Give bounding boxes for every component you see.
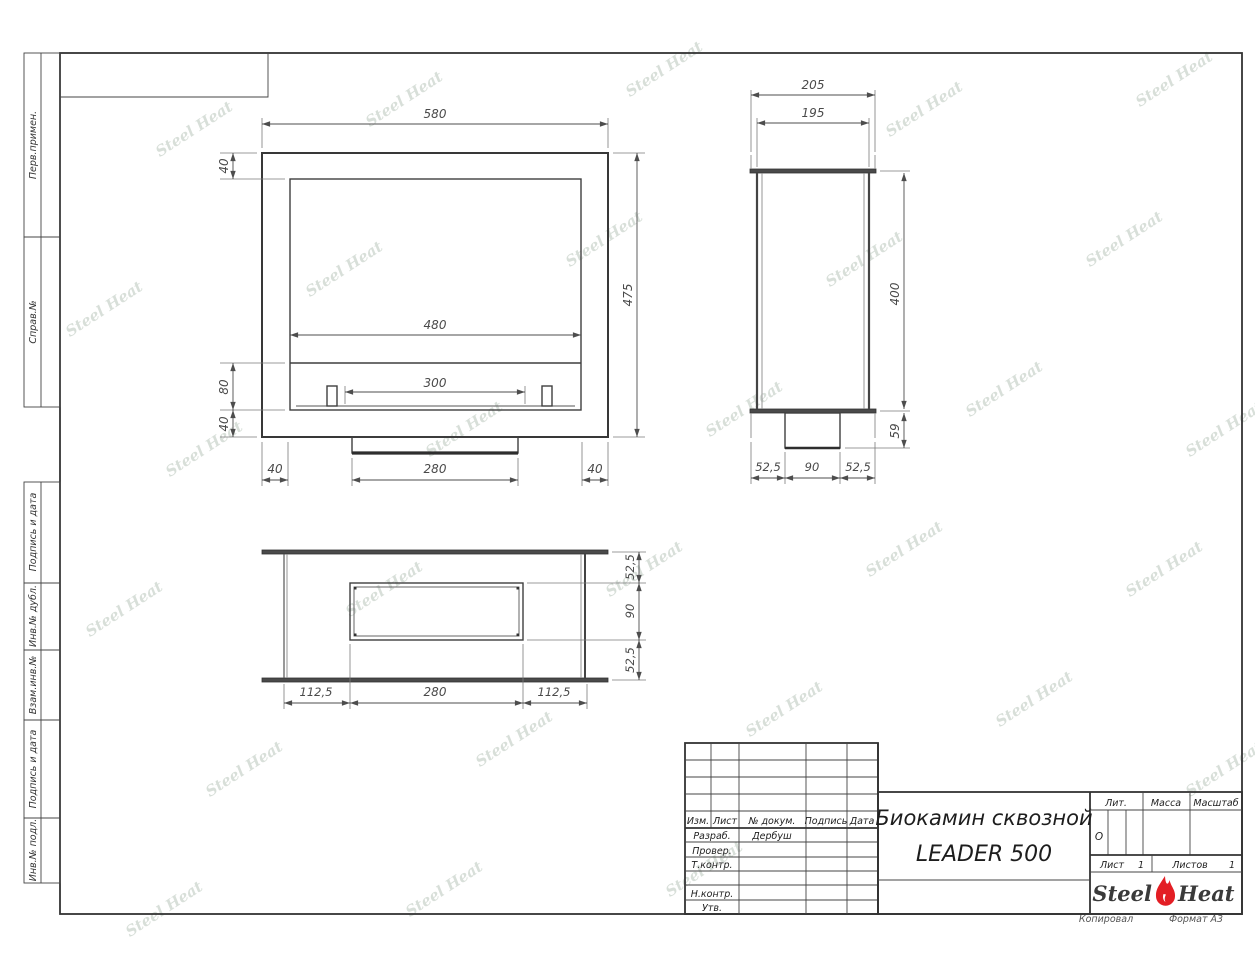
technical-drawing: Перв.примен. Справ.№ Подпись и дата Инв.… xyxy=(0,0,1255,970)
lit-value: О xyxy=(1095,831,1103,843)
sidebar-label: Справ.№ xyxy=(28,300,39,343)
dim-plan-offset-bottom: 52,5 xyxy=(623,647,637,673)
sidebar-label: Инв.№ дубл. xyxy=(28,585,39,647)
sidebar-column: Перв.примен. Справ.№ Подпись и дата Инв.… xyxy=(24,53,60,883)
dim-shelf-height: 80 xyxy=(217,379,231,395)
dim-right-wall: 40 xyxy=(587,462,603,476)
dim-plan-opening-width: 280 xyxy=(424,685,447,699)
col-doc: № докум. xyxy=(748,816,796,827)
dim-offset-left: 52,5 xyxy=(755,460,781,474)
sidebar-cell-perv-primen: Перв.примен. xyxy=(24,53,60,237)
sidebar-label: Подпись и дата xyxy=(28,492,39,571)
sidebar-cell-sprav-n: Справ.№ xyxy=(24,237,60,407)
document-title: Биокамин сквозной xyxy=(875,806,1092,830)
sidebar-cell-podpis-data-2: Подпись и дата xyxy=(24,720,60,818)
dim-window-width: 480 xyxy=(424,318,447,332)
dim-box-height: 59 xyxy=(888,423,902,438)
dim-box-width: 90 xyxy=(805,460,820,474)
sidebar-cell-podpis-data-1: Подпись и дата xyxy=(24,482,60,583)
dim-plan-offset-top: 52,5 xyxy=(623,554,637,580)
sidebar-label: Перв.примен. xyxy=(28,111,39,179)
sidebar-label: Взам.инв.№ xyxy=(28,656,39,715)
front-view xyxy=(262,153,608,453)
dim-offset-right: 52,5 xyxy=(845,460,871,474)
document-model: LEADER 500 xyxy=(916,842,1052,867)
mass-label: Масса xyxy=(1151,798,1181,809)
dim-plan-offset-right: 112,5 xyxy=(538,685,571,699)
dim-overall-width: 580 xyxy=(424,107,447,121)
sidebar-label: Инв.№ подл. xyxy=(28,819,39,882)
drawing-frame xyxy=(60,53,1242,914)
sidebar-cell-inv-podl: Инв.№ подл. xyxy=(24,818,60,883)
dim-burner-width: 300 xyxy=(424,376,447,390)
format-note: Формат А3 xyxy=(1169,914,1223,925)
sheets-label: Листов xyxy=(1171,860,1208,871)
sidebar-label: Подпись и дата xyxy=(28,729,39,808)
dim-plan-opening-depth: 90 xyxy=(623,604,637,619)
role-developed: Разраб. xyxy=(693,831,730,842)
col-sign: Подпись xyxy=(805,816,848,827)
top-view-dimensions: 52,5 90 52,5 112,5 280 112,5 xyxy=(284,552,646,709)
scale-label: Масштаб xyxy=(1193,798,1238,809)
dim-left-wall: 40 xyxy=(267,462,283,476)
steelheat-logo: Steel Heat xyxy=(1092,876,1234,906)
role-ncontrol: Н.контр. xyxy=(691,889,734,900)
role-tcontrol: Т.контр. xyxy=(691,860,732,871)
dim-flange-depth: 205 xyxy=(802,78,825,92)
col-list: Лист xyxy=(712,816,738,827)
sheets-total: 1 xyxy=(1229,860,1235,871)
logo-text-heat: Heat xyxy=(1177,881,1235,906)
title-block: Изм. Лист № докум. Подпись Дата Разраб. … xyxy=(685,743,1242,914)
sheet-number: 1 xyxy=(1138,860,1144,871)
dim-body-height: 400 xyxy=(888,282,902,305)
side-view xyxy=(750,155,876,448)
dim-body-depth: 195 xyxy=(802,106,825,120)
sidebar-cell-vzam-inv: Взам.инв.№ xyxy=(24,650,60,720)
col-izm: Изм. xyxy=(687,816,709,827)
drawing-sheet: Steel HeatSteel HeatSteel HeatSteel Heat… xyxy=(0,0,1255,970)
top-view xyxy=(262,550,608,682)
lit-label: Лит. xyxy=(1104,798,1127,809)
developer-name: Дербуш xyxy=(751,831,792,842)
logo-text-steel: Steel xyxy=(1092,881,1152,906)
copied-note: Копировал xyxy=(1079,914,1133,925)
role-checked: Провер. xyxy=(692,846,731,857)
col-date: Дата xyxy=(849,816,875,827)
flame-icon xyxy=(1156,876,1175,906)
dim-tray-width: 280 xyxy=(424,462,447,476)
sheet-label: Лист xyxy=(1099,860,1125,871)
role-approved: Утв. xyxy=(702,903,722,914)
sidebar-cell-inv-dubl: Инв.№ дубл. xyxy=(24,583,60,650)
dim-overall-height: 475 xyxy=(621,284,635,307)
dim-plan-offset-left: 112,5 xyxy=(300,685,333,699)
side-view-dimensions: 205 195 400 59 52,5 90 52,5 xyxy=(751,78,910,484)
dim-top-wall: 40 xyxy=(217,158,231,174)
dim-bottom-wall: 40 xyxy=(217,416,231,432)
